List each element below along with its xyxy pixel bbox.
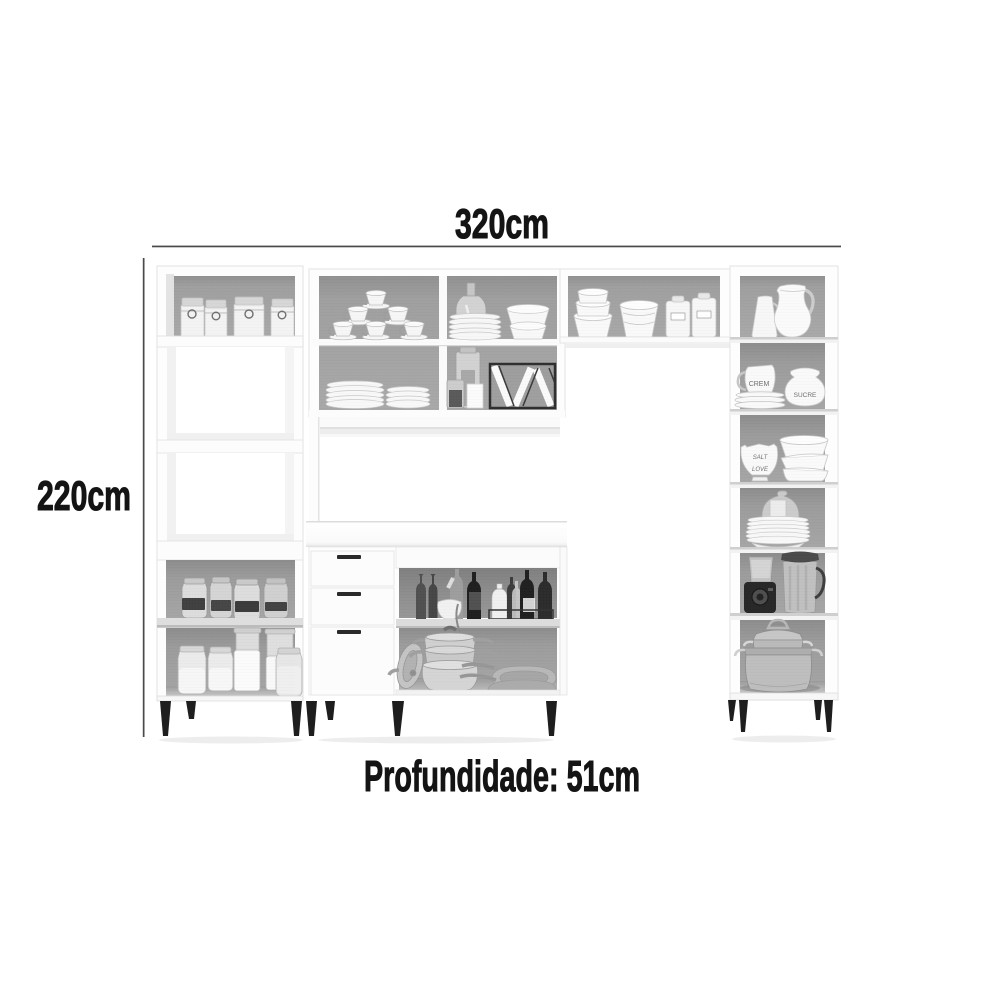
svg-text:220cm: 220cm bbox=[37, 472, 131, 519]
svg-text:Profundidade: 51cm: Profundidade: 51cm bbox=[364, 752, 640, 801]
svg-text:320cm: 320cm bbox=[455, 200, 549, 247]
